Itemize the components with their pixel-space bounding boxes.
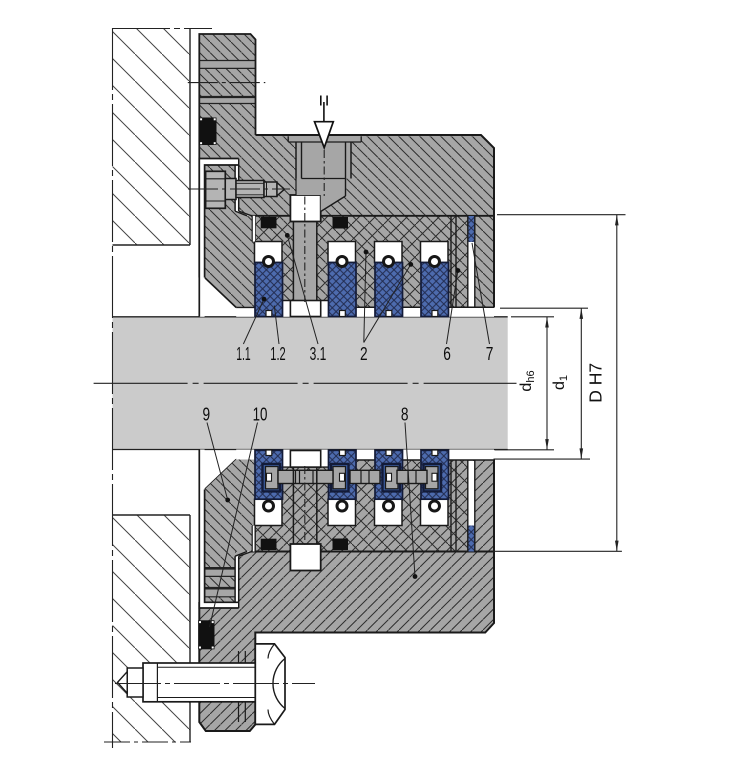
svg-text:1.1: 1.1 — [236, 344, 250, 365]
svg-text:1.2: 1.2 — [270, 344, 285, 365]
svg-text:2: 2 — [360, 344, 368, 364]
svg-text:8: 8 — [401, 405, 409, 425]
svg-text:7: 7 — [486, 344, 494, 364]
svg-text:3.1: 3.1 — [310, 345, 327, 365]
svg-text:9: 9 — [202, 405, 210, 425]
svg-text:D H7: D H7 — [586, 363, 606, 403]
svg-text:dh6: dh6 — [518, 370, 537, 391]
svg-text:6: 6 — [443, 344, 451, 364]
svg-text:d1: d1 — [551, 375, 570, 390]
svg-text:10: 10 — [253, 404, 268, 425]
